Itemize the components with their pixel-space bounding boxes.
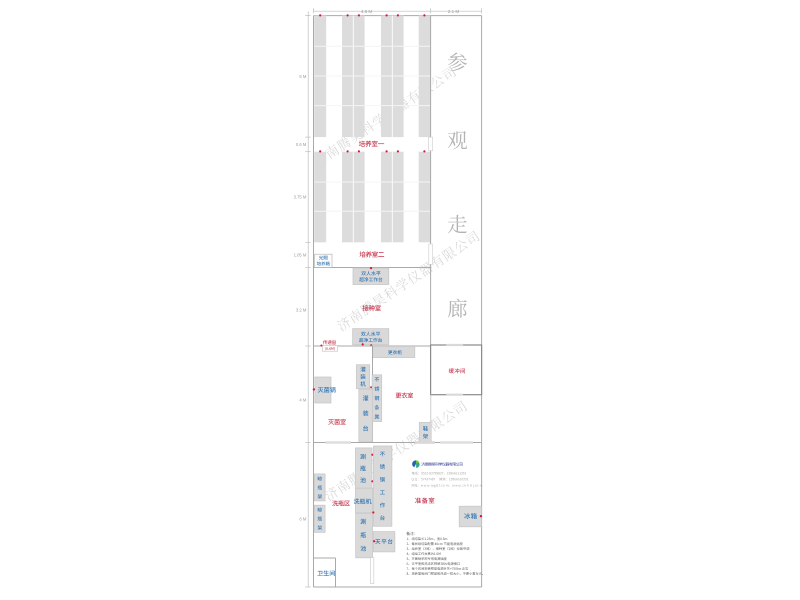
svg-text:4 M: 4 M — [299, 398, 306, 403]
svg-text:6 M: 6 M — [299, 517, 306, 522]
svg-text:5 M: 5 M — [299, 74, 306, 79]
svg-text:1.05 M: 1.05 M — [294, 253, 307, 258]
svg-text:2.1 M: 2.1 M — [448, 9, 460, 14]
svg-text:3.75 M: 3.75 M — [294, 195, 307, 200]
svg-text:3.2 M: 3.2 M — [296, 308, 307, 313]
svg-text:4.8 M: 4.8 M — [361, 9, 373, 14]
svg-text:0.6 M: 0.6 M — [296, 142, 307, 147]
